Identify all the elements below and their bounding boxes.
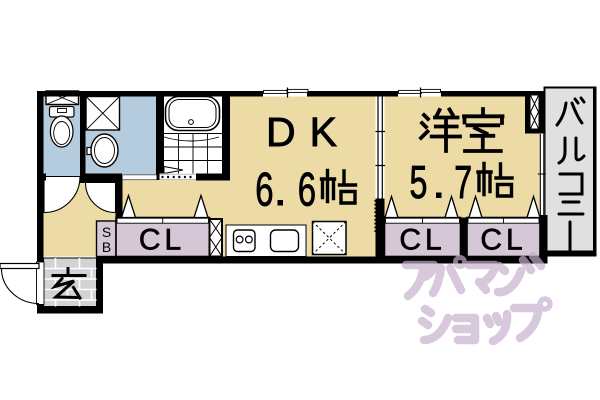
svg-text:S: S (102, 224, 111, 240)
svg-text:DK: DK (266, 109, 351, 155)
svg-text:6: 6 (298, 163, 316, 216)
svg-text:CL: CL (399, 224, 445, 257)
svg-text:7: 7 (454, 157, 472, 208)
svg-text:5: 5 (410, 157, 428, 208)
svg-text:B: B (102, 239, 111, 255)
svg-text:6: 6 (255, 163, 273, 216)
svg-text:CL: CL (139, 224, 185, 257)
svg-text:CL: CL (480, 224, 526, 257)
